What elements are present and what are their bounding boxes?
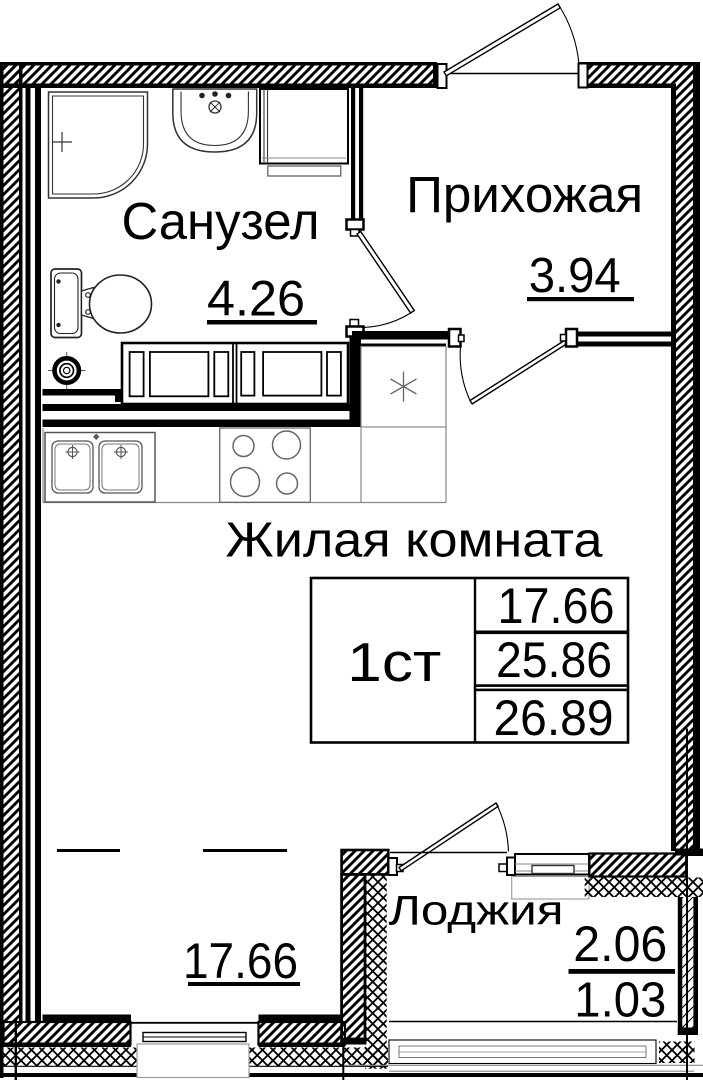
svg-text:Лоджия: Лоджия [389, 887, 564, 934]
svg-text:Жилая комната: Жилая комната [226, 514, 604, 568]
svg-text:17.66: 17.66 [498, 578, 615, 634]
svg-text:2.06: 2.06 [573, 916, 667, 972]
svg-text:1ст: 1ст [347, 631, 441, 693]
svg-text:3.94: 3.94 [529, 249, 621, 303]
svg-text:4.26: 4.26 [207, 271, 305, 327]
svg-text:17.66: 17.66 [183, 933, 298, 989]
svg-text:Санузел: Санузел [122, 193, 320, 251]
svg-text:26.89: 26.89 [494, 690, 614, 746]
svg-text:25.86: 25.86 [496, 632, 612, 688]
svg-text:1.03: 1.03 [574, 974, 666, 1028]
svg-text:Прихожая: Прихожая [406, 166, 643, 223]
